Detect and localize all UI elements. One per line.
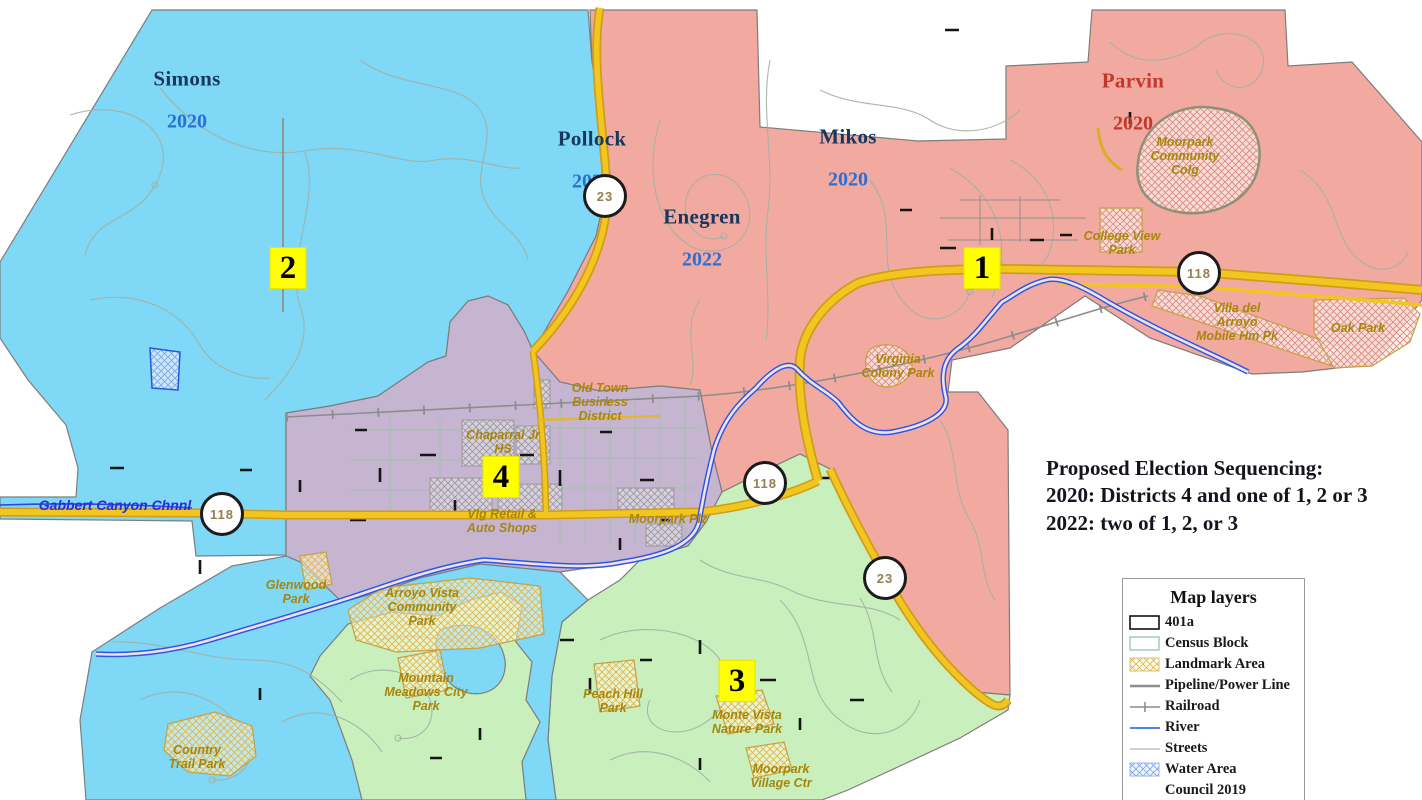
- route-118-shield-mid: 118: [743, 461, 787, 505]
- district-3-badge: 3: [719, 660, 756, 702]
- legend-row-river: River: [1129, 717, 1298, 738]
- river-line-icon: [1129, 720, 1165, 736]
- legend-row-census-block: Census Block: [1129, 633, 1298, 654]
- landmark-moorpark-plz-b: [646, 524, 682, 546]
- map-layers-legend: Map layers 401a Census Block Landmark Ar…: [1122, 578, 1305, 800]
- route-23-shield-north: 23: [583, 174, 627, 218]
- tan-hatch-box-icon: [1129, 657, 1165, 673]
- legend-row-council-2019: Council 2019: [1129, 780, 1298, 800]
- route-118-shield-east: 118: [1177, 251, 1221, 295]
- landmark-oak-park: [1314, 298, 1420, 368]
- landmark-peach-hill: [594, 660, 640, 712]
- legend-row-railroad: Railroad: [1129, 696, 1298, 717]
- legend-row-water-area: Water Area: [1129, 759, 1298, 780]
- landmark-virginia-colony: [866, 345, 912, 387]
- sequencing-2022: 2022: two of 1, 2, or 3: [1046, 510, 1422, 537]
- route-118-shield-west: 118: [200, 492, 244, 536]
- water-area-patch: [150, 348, 180, 390]
- legend-row-landmark-area: Landmark Area: [1129, 654, 1298, 675]
- streets-line-icon: [1129, 741, 1165, 757]
- landmark-mountain-meadows: [398, 650, 448, 698]
- sequencing-2020: 2020: Districts 4 and one of 1, 2 or 3: [1046, 482, 1422, 509]
- sequencing-title: Proposed Election Sequencing:: [1046, 455, 1422, 482]
- blue-hatch-box-icon: [1129, 762, 1165, 778]
- legend-row-pipeline: Pipeline/Power Line: [1129, 675, 1298, 696]
- black-outline-box-icon: [1129, 615, 1165, 631]
- map-canvas[interactable]: Simons 2020 Pollock 2022 Mikos 2020 Eneg…: [0, 0, 1422, 800]
- green-outline-box-icon: [1129, 636, 1165, 652]
- legend-row-streets: Streets: [1129, 738, 1298, 759]
- route-23-shield-south: 23: [863, 556, 907, 600]
- legend-row-401a: 401a: [1129, 612, 1298, 633]
- landmark-glenwood: [300, 552, 332, 590]
- pipeline-line-icon: [1129, 678, 1165, 694]
- district-4-badge: 4: [483, 456, 520, 498]
- legend-title: Map layers: [1129, 587, 1298, 608]
- railroad-line-icon: [1129, 699, 1165, 715]
- election-sequencing-note: Proposed Election Sequencing: 2020: Dist…: [1046, 455, 1422, 537]
- district-2-badge: 2: [270, 247, 307, 289]
- landmark-college-view: [1100, 208, 1142, 252]
- district-1-badge: 1: [964, 247, 1001, 289]
